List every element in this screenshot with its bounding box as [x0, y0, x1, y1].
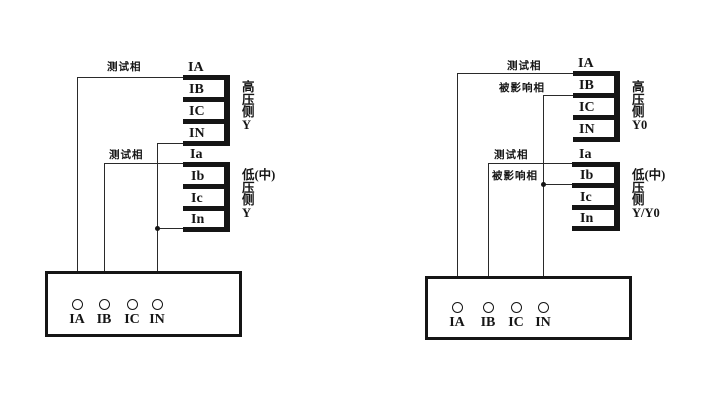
right-tester-terminal-circle-ic — [511, 302, 522, 313]
left-tester-terminal-label-ia: IA — [69, 313, 85, 327]
right-low-winding-line-3: 侧 — [632, 194, 665, 207]
left-low-terminal-label-ic: Ic — [191, 192, 203, 206]
right-tester-terminal-circle-ib — [483, 302, 494, 313]
right-high-terminal-bar-in — [573, 137, 620, 142]
left-high-terminal-label-ia: IA — [188, 61, 204, 75]
right-tester-terminal-label-ib: IB — [481, 316, 496, 330]
left-high-winding-label: 高 压 侧 Y — [242, 81, 255, 131]
right-low-winding-line-1: 低(中) — [632, 169, 665, 182]
left-low-winding-line-1: 低(中) — [242, 169, 275, 182]
right-high-terminal-bar-ic — [573, 115, 620, 120]
right-high-winding-label: 高 压 侧 Y0 — [632, 81, 647, 131]
left-low-terminal-label-ib: Ib — [191, 170, 204, 184]
left-wire-ia-vertical — [77, 77, 78, 299]
left-tester-terminal-circle-ib — [99, 299, 110, 310]
right-wire-ib-horizontal — [543, 95, 573, 96]
left-wire-in-low-horizontal — [157, 228, 183, 229]
right-wire-ib-to-in-vertical — [543, 95, 544, 302]
right-high-winding-line-1: 高 — [632, 81, 647, 94]
left-high-winding-line-4: Y — [242, 119, 255, 132]
right-low-terminal-label-ib: Ib — [580, 169, 593, 183]
left-low-terminal-label-in: In — [191, 213, 204, 227]
right-high-test-phase-label: 测试相 — [507, 62, 542, 73]
left-tester-terminal-label-in: IN — [149, 313, 165, 327]
left-high-terminal-label-ic: IC — [189, 105, 205, 119]
right-high-terminal-label-ia: IA — [578, 57, 594, 71]
left-wire-ia-horizontal — [77, 77, 183, 78]
left-high-test-phase-label: 测试相 — [107, 63, 142, 74]
right-high-terminal-label-in: IN — [579, 123, 595, 137]
left-low-terminal-label-ia: Ia — [190, 148, 202, 162]
left-tester-terminal-circle-in — [152, 299, 163, 310]
right-wire-ia-low-horizontal — [488, 163, 572, 164]
left-low-bus-bar — [224, 162, 230, 232]
right-low-test-phase-label: 测试相 — [494, 151, 529, 162]
right-high-affected-phase-label: 被影响相 — [499, 84, 545, 95]
right-high-terminal-bar-ia — [573, 71, 620, 76]
right-low-winding-label: 低(中) 压 侧 Y/Y0 — [632, 169, 665, 219]
left-high-winding-line-3: 侧 — [242, 106, 255, 119]
right-tester-terminal-circle-in — [538, 302, 549, 313]
right-low-terminal-bar-ic — [572, 205, 620, 210]
left-tester-terminal-circle-ic — [127, 299, 138, 310]
left-high-terminal-bar-ia — [183, 75, 230, 80]
left-low-winding-label: 低(中) 压 侧 Y — [242, 169, 275, 219]
right-high-bus-bar — [614, 71, 620, 142]
left-wire-ia-low-horizontal — [104, 163, 183, 164]
left-junction-dot — [155, 226, 160, 231]
right-tester-terminal-label-ia: IA — [449, 316, 465, 330]
left-high-terminal-label-in: IN — [189, 127, 205, 141]
left-high-terminal-bar-ic — [183, 119, 230, 124]
left-low-test-phase-label: 测试相 — [109, 151, 144, 162]
right-low-affected-phase-label: 被影响相 — [492, 172, 538, 183]
left-low-terminal-bar-in — [183, 227, 230, 232]
right-high-terminal-label-ic: IC — [579, 101, 595, 115]
right-high-terminal-label-ib: IB — [579, 79, 594, 93]
left-high-bus-bar — [224, 75, 230, 146]
left-low-terminal-bar-ia — [183, 162, 230, 167]
right-junction-dot — [541, 182, 546, 187]
left-tester-terminal-circle-ia — [72, 299, 83, 310]
right-wire-ia-vertical — [457, 73, 458, 302]
right-tester-terminal-label-in: IN — [535, 316, 551, 330]
right-low-terminal-bar-in — [572, 226, 620, 231]
right-low-terminal-bar-ia — [572, 162, 620, 167]
left-high-terminal-bar-in — [183, 141, 230, 146]
right-low-terminal-label-in: In — [580, 212, 593, 226]
left-low-terminal-bar-ic — [183, 206, 230, 211]
left-high-terminal-bar-ib — [183, 97, 230, 102]
right-tester-terminal-label-ic: IC — [508, 316, 524, 330]
wiring-diagram-canvas: IA IB IC IN 高 压 侧 Y Ia Ib Ic In 低(中) 压 侧… — [0, 0, 717, 411]
left-wire-in-high-horizontal — [157, 143, 183, 144]
right-wire-ib-low-horizontal — [543, 184, 572, 185]
right-wire-ia-horizontal — [457, 73, 573, 74]
right-low-terminal-label-ia: Ia — [579, 148, 591, 162]
right-high-winding-line-4: Y0 — [632, 119, 647, 132]
right-low-winding-line-4: Y/Y0 — [632, 207, 665, 220]
left-low-winding-line-4: Y — [242, 207, 275, 220]
right-low-bus-bar — [614, 162, 620, 231]
right-low-terminal-label-ic: Ic — [580, 191, 592, 205]
left-low-winding-line-3: 侧 — [242, 194, 275, 207]
left-tester-terminal-label-ib: IB — [97, 313, 112, 327]
left-high-terminal-label-ib: IB — [189, 83, 204, 97]
right-tester-terminal-circle-ia — [452, 302, 463, 313]
right-low-terminal-bar-ib — [572, 183, 620, 188]
right-high-winding-line-3: 侧 — [632, 106, 647, 119]
left-high-winding-line-1: 高 — [242, 81, 255, 94]
left-low-terminal-bar-ib — [183, 184, 230, 189]
right-high-terminal-bar-ib — [573, 93, 620, 98]
left-tester-terminal-label-ic: IC — [124, 313, 140, 327]
